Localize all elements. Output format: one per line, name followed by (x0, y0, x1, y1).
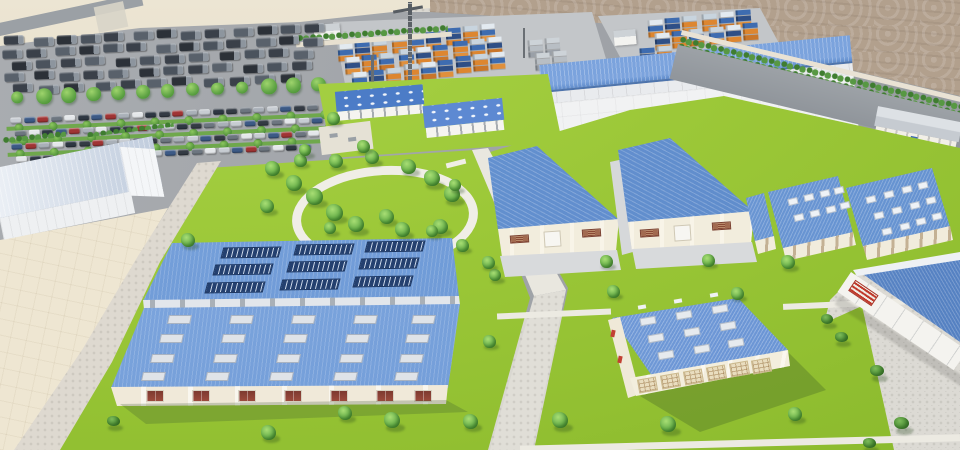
tree-icon (702, 254, 715, 267)
tree-icon (449, 179, 461, 191)
tree-icon (326, 204, 343, 221)
bush (863, 438, 876, 448)
tree-icon (327, 112, 340, 125)
tree-icon (265, 161, 280, 176)
tree-icon (731, 287, 744, 300)
tree-icon (299, 144, 311, 156)
tree-icon (384, 412, 400, 428)
tree-icon (324, 222, 336, 234)
tree-icon (660, 416, 676, 432)
tree-shadow (836, 341, 851, 348)
tree-icon (357, 140, 370, 153)
industrial-park-render (0, 0, 960, 450)
tree-icon (379, 209, 394, 224)
bush (821, 314, 833, 324)
bush (835, 332, 848, 342)
tree-icon (260, 199, 274, 213)
tree-icon (426, 225, 438, 237)
vegetation-layer (0, 0, 960, 450)
tree-icon (607, 285, 620, 298)
tree-icon (456, 239, 469, 252)
tree-icon (788, 407, 802, 421)
tree-icon (286, 175, 302, 191)
tree-icon (781, 255, 795, 269)
tree-icon (395, 222, 410, 237)
tree-icon (338, 406, 352, 420)
tree-icon (181, 233, 195, 247)
tree-icon (261, 425, 276, 440)
tree-icon (600, 255, 613, 268)
bush (107, 416, 120, 426)
tree-icon (552, 412, 568, 428)
tree-icon (463, 414, 478, 429)
tree-icon (329, 154, 343, 168)
tree-icon (482, 256, 495, 269)
tree-icon (401, 159, 416, 174)
tree-icon (483, 335, 496, 348)
tree-shadow (872, 375, 888, 382)
tree-icon (306, 188, 323, 205)
tree-icon (424, 170, 440, 186)
bush (894, 417, 909, 429)
tree-icon (348, 216, 364, 232)
bush (870, 365, 884, 376)
tree-shadow (108, 425, 123, 432)
